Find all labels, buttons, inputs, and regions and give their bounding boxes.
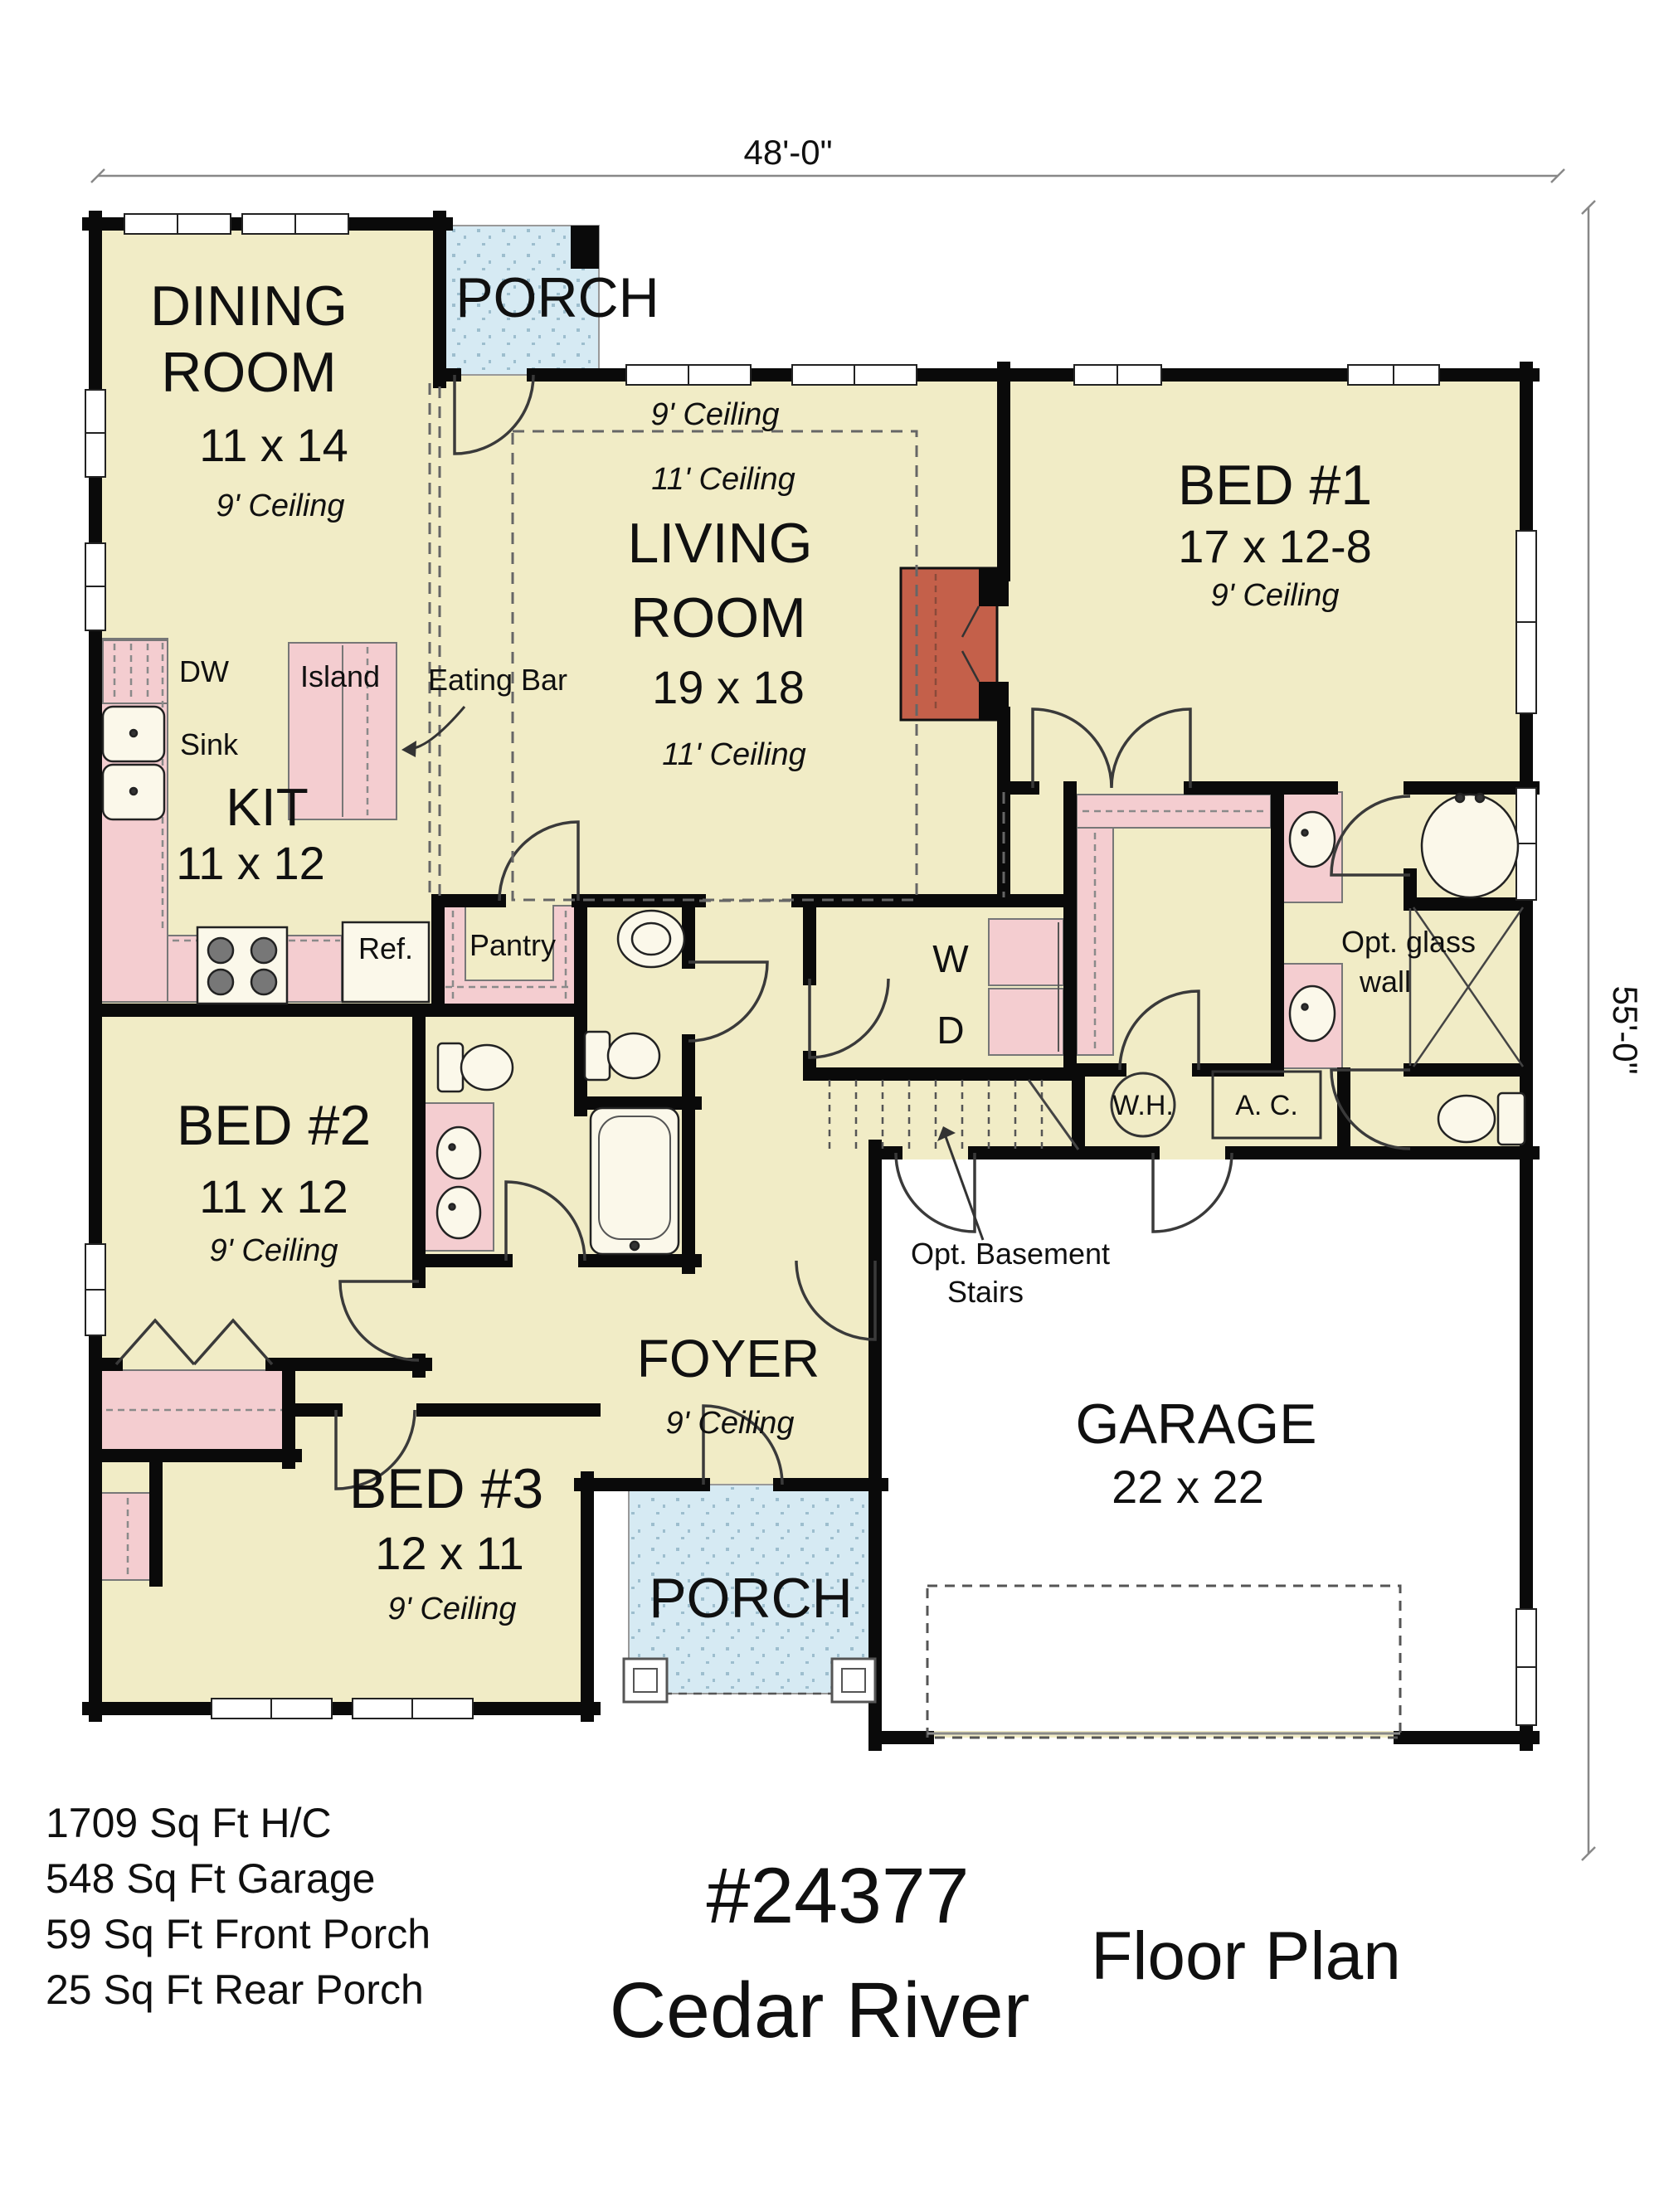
bed2-size: 11 x 12 [199, 1170, 348, 1223]
dim-depth: 55'-0" [1606, 986, 1645, 1075]
bed2-name: BED #2 [177, 1094, 371, 1157]
opt-basement-2: Stairs [947, 1275, 1024, 1309]
dim-width: 48'-0" [744, 133, 833, 172]
hall-toilet-tank [438, 1043, 463, 1091]
kitchen-name: KIT [226, 777, 309, 837]
dishwasher [103, 640, 168, 703]
dryer-unit [989, 989, 1063, 1055]
eating-bar-label: Eating Bar [428, 663, 567, 697]
bed1-size: 17 x 12-8 [1178, 520, 1372, 572]
master-tub [1422, 795, 1518, 897]
floor-plan-drawing: 48'-0" 55'-0" DINING ROOM 11 x 14 9' Cei… [0, 0, 1659, 2212]
living-name-2: ROOM [630, 586, 806, 649]
floor-plan-page: 48'-0" 55'-0" DINING ROOM 11 x 14 9' Cei… [0, 0, 1659, 2212]
dryer-label: D [937, 1009, 964, 1052]
dining-name-2: ROOM [161, 341, 337, 404]
living-ceiling-tray-2: 11' Ceiling [662, 737, 805, 772]
foyer-ceiling: 9' Ceiling [665, 1406, 794, 1441]
garage-name: GARAGE [1076, 1393, 1317, 1456]
pantry-label: Pantry [469, 928, 556, 962]
washer-unit [989, 919, 1063, 985]
opt-glass-wall-1: Opt. glass [1341, 925, 1476, 959]
bed1-ceiling: 9' Ceiling [1210, 578, 1339, 613]
island-label: Island [300, 659, 380, 693]
master-toilet-tank [1498, 1093, 1525, 1145]
ac-label: A. C. [1235, 1090, 1298, 1121]
dining-name-1: DINING [150, 275, 348, 338]
front-porch-label: PORCH [649, 1567, 853, 1630]
powder-toilet-tank [585, 1032, 610, 1080]
dining-size: 11 x 14 [199, 419, 348, 471]
dw-label: DW [179, 654, 229, 688]
washer-label: W [932, 937, 969, 980]
plan-name: Cedar River [610, 1966, 1030, 2054]
rear-porch-label: PORCH [455, 266, 659, 329]
area-line-2: 548 Sq Ft Garage [46, 1855, 375, 1902]
bed3-ceiling: 9' Ceiling [387, 1592, 516, 1626]
area-line-4: 25 Sq Ft Rear Porch [46, 1966, 424, 2013]
bed2-ceiling: 9' Ceiling [209, 1233, 338, 1268]
master-sink-2 [1290, 986, 1335, 1041]
area-line-1: 1709 Sq Ft H/C [46, 1800, 332, 1846]
stove [197, 927, 287, 1004]
ref-label: Ref. [358, 931, 413, 965]
area-line-3: 59 Sq Ft Front Porch [46, 1911, 431, 1957]
rear-porch-post [571, 226, 599, 269]
water-heater-label: W.H. [1112, 1090, 1174, 1121]
foyer-name: FOYER [637, 1329, 820, 1388]
plan-number: #24377 [706, 1852, 969, 1940]
drawing-title: Floor Plan [1091, 1918, 1401, 1994]
garage-size: 22 x 22 [1112, 1461, 1264, 1513]
kitchen-size: 11 x 12 [176, 837, 325, 889]
bed3-name: BED #3 [349, 1457, 543, 1520]
master-sink-1 [1290, 812, 1335, 867]
hall-vanity-sink-2 [437, 1187, 480, 1238]
hall-vanity-sink-1 [437, 1127, 480, 1179]
living-ceiling-outer: 9' Ceiling [650, 397, 779, 432]
living-size: 19 x 18 [652, 661, 805, 713]
area-summary: 1709 Sq Ft H/C 548 Sq Ft Garage 59 Sq Ft… [46, 1800, 431, 2013]
bed1-name: BED #1 [1178, 454, 1372, 517]
opt-glass-wall-2: wall [1359, 965, 1411, 999]
opt-basement-1: Opt. Basement [911, 1237, 1110, 1271]
living-name-1: LIVING [628, 512, 813, 575]
bed3-size: 12 x 11 [375, 1527, 524, 1579]
living-ceiling-tray: 11' Ceiling [651, 462, 795, 497]
sink-label: Sink [180, 727, 239, 761]
dining-ceiling: 9' Ceiling [216, 489, 344, 523]
